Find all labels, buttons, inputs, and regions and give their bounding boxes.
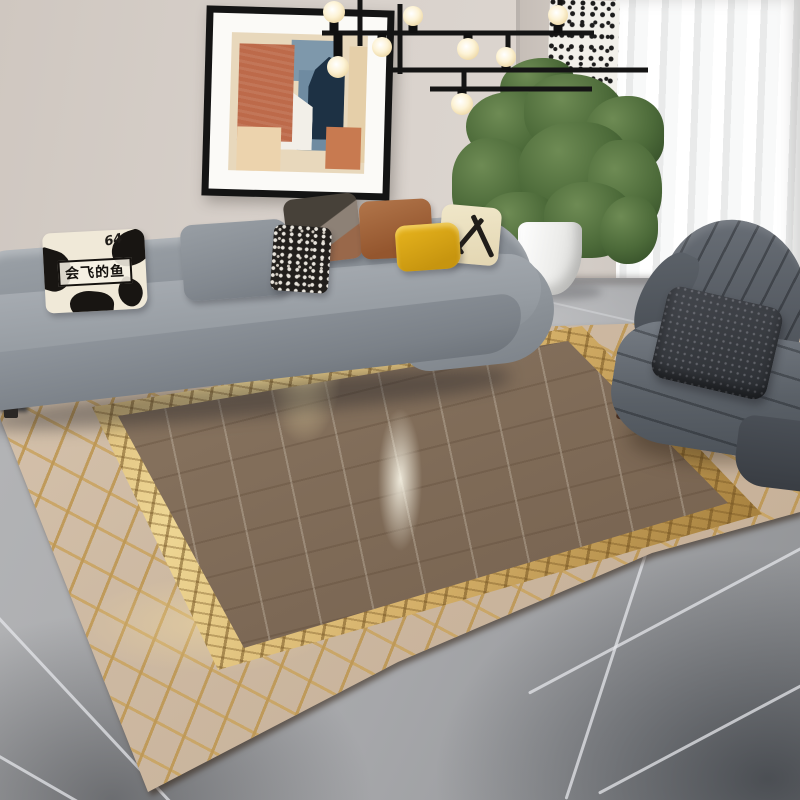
pillow-yellow <box>394 222 461 272</box>
living-room-scene: 64 会飞的鱼 <box>0 0 800 800</box>
pillow-chinese-text: 会飞的鱼 <box>57 257 132 287</box>
pillow-houndstooth <box>270 224 332 294</box>
pillow-graphic: 64 会飞的鱼 <box>42 228 148 313</box>
pillow-black-shape <box>69 289 115 313</box>
